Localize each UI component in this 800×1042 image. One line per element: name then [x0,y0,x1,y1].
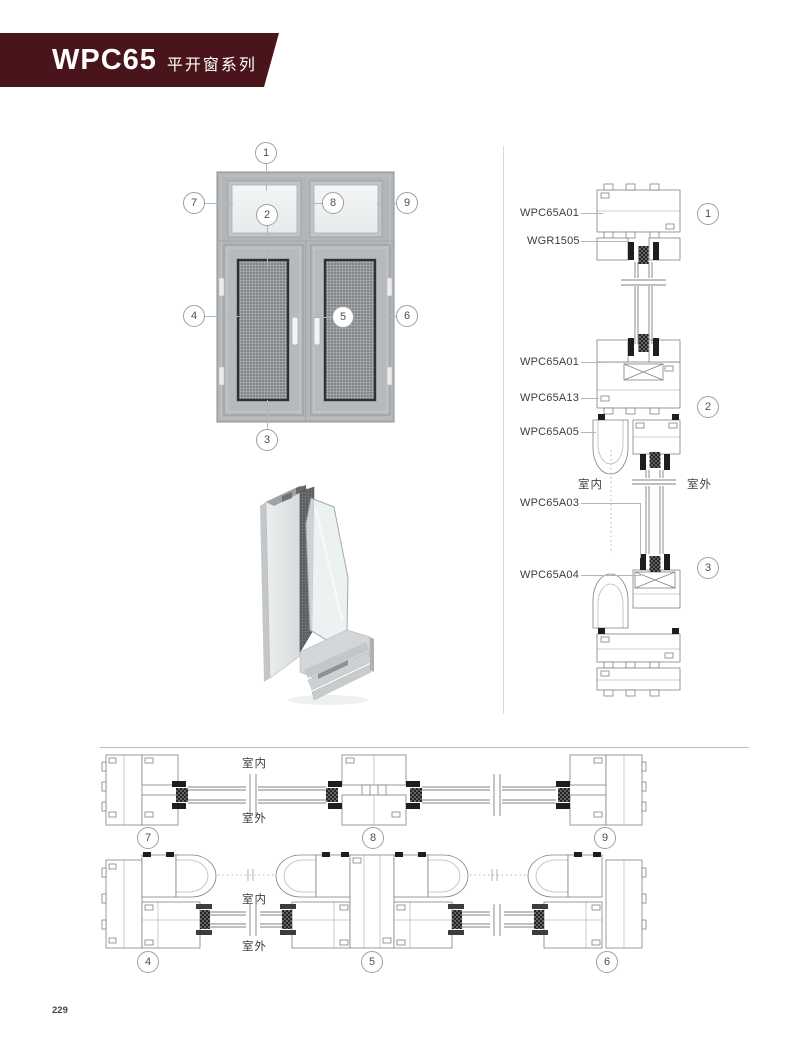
elevation-callout-1: 1 [255,142,277,164]
leader-line [266,164,267,191]
leader-line [581,241,629,242]
bottom-panel-border [100,747,749,748]
row1-callout-8: 8 [362,827,384,849]
indoor-label-row1: 室内 [242,755,267,771]
series-banner: WPC65 平开窗系列 [0,33,279,87]
leader-line [309,317,332,318]
profile-label-wpc65a05: WPC65A05 [520,426,579,438]
leader-line [581,575,641,576]
window-elevation-drawing [180,145,420,460]
indoor-label-row2: 室内 [242,891,267,907]
profile-3d-svg [248,472,383,712]
elevation-callout-5: 5 [332,306,354,328]
outdoor-label-row2: 室外 [242,938,267,954]
leader-line [640,503,641,558]
vsec-callout-1: 1 [697,203,719,225]
leader-line [384,316,396,317]
profile-label-wpc65a03: WPC65A03 [520,497,579,509]
catalog-page: WPC65 平开窗系列 [0,0,800,1042]
row2-profiles [102,855,646,948]
leader-line [581,432,596,433]
left-sash [224,245,303,415]
row2-callout-5: 5 [361,951,383,973]
indoor-label-vsec: 室内 [578,476,603,492]
horizontal-section-row2 [100,850,660,965]
page-number: 229 [52,1005,68,1016]
profile-label-wpc65a13: WPC65A13 [520,392,579,404]
leader-line [581,362,603,363]
profile-label-wpc65a01-transom: WPC65A01 [520,356,579,368]
profile-label-wgr1505: WGR1505 [527,235,580,247]
leader-line [205,316,239,317]
elevation-callout-8: 8 [322,192,344,214]
leader-line [581,213,603,214]
row1-callout-7: 7 [137,827,159,849]
profile-label-wpc65a04: WPC65A04 [520,569,579,581]
elevation-callout-7: 7 [183,192,205,214]
vsec-profiles [593,184,680,696]
elevation-callout-2: 2 [256,204,278,226]
outdoor-label-vsec: 室外 [687,476,712,492]
row2-callout-4: 4 [137,951,159,973]
leader-line [581,398,599,399]
window-elevation-svg [180,145,420,460]
elevation-callout-3: 3 [256,429,278,451]
series-name: 平开窗系列 [167,51,257,75]
elevation-callout-9: 9 [396,192,418,214]
leader-line [205,203,233,204]
leader-line [377,203,396,204]
elevation-callout-4: 4 [183,305,205,327]
leader-line [267,226,268,268]
elevation-callout-6: 6 [396,305,418,327]
outdoor-label-row1: 室外 [242,810,267,826]
vsec-callout-2: 2 [697,396,719,418]
horizontal-section-row2-svg [100,850,660,965]
row2-callout-6: 6 [596,951,618,973]
leader-line [581,503,641,504]
series-code: WPC65 [52,46,157,75]
leader-line [305,203,323,204]
profile-3d-illustration [248,472,383,712]
leader-line [267,400,268,430]
column-divider [503,146,504,714]
profile-label-wpc65a01-head: WPC65A01 [520,207,579,219]
right-sash [311,245,390,415]
row1-callout-9: 9 [594,827,616,849]
vsec-callout-3: 3 [697,557,719,579]
